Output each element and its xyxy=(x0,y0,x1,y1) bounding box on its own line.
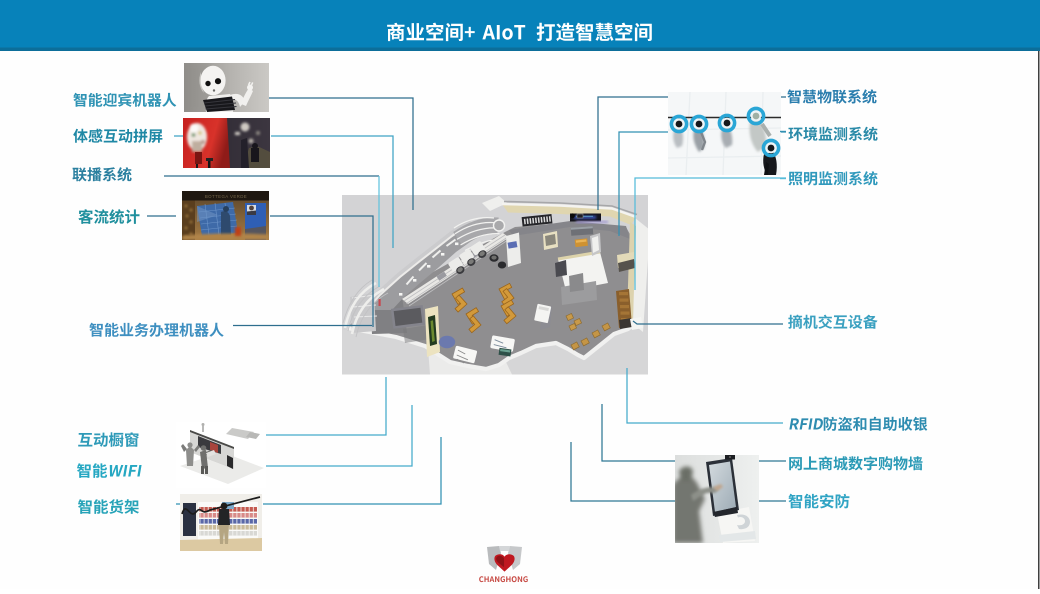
svg-text:BOTTEGA VERDE: BOTTEGA VERDE xyxy=(205,194,247,199)
